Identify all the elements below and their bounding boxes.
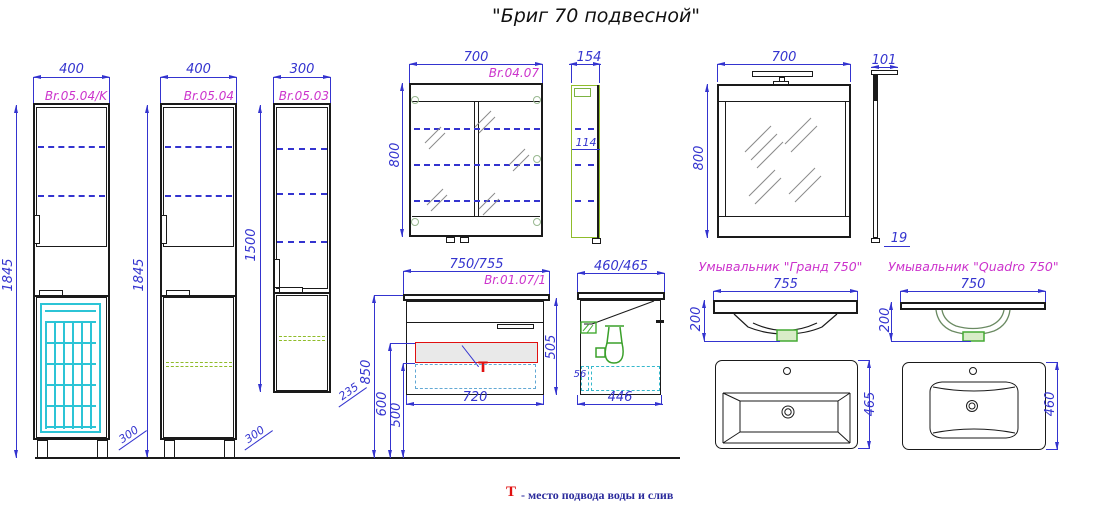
grand-height-dim: 200 — [690, 299, 704, 339]
cab3-door-handle — [274, 259, 280, 288]
mcab-height-dim: 800 — [389, 135, 403, 175]
mirrorside-top-dim: 101 — [864, 53, 904, 68]
mcab-foot-tab — [446, 237, 455, 243]
quadro-height-dim: 200 — [879, 300, 893, 340]
cab2-upper-door — [163, 107, 234, 247]
cab3-lower-handle — [279, 287, 303, 293]
cab1-basket-grid — [45, 321, 96, 429]
cab3-height-dim: 1500 — [245, 225, 259, 265]
vanity-inner-width-dim: 720 — [406, 390, 544, 405]
extension-line — [577, 274, 578, 292]
cab2-shelf-dash — [165, 146, 232, 148]
cab3-shelf-dash — [277, 193, 327, 195]
legend-text: - место подвода воды и слив — [521, 488, 761, 503]
mirrorside-panel-top — [873, 75, 878, 101]
grand-front-slab — [713, 300, 858, 314]
mirror-width-dim: 700 — [717, 50, 851, 65]
cab2-leg-dim: 300 — [237, 420, 273, 451]
vanity-countertop — [403, 294, 550, 301]
vanity-600-dim: 600 — [376, 384, 390, 424]
cab2-width-dim: 400 — [160, 62, 237, 77]
mcab-hinge-circle — [533, 218, 541, 226]
vanity-500-dim: 500 — [390, 395, 404, 435]
cab3-lower-door — [276, 295, 328, 391]
cab2-green-dash — [166, 362, 232, 367]
vanity-drawer-dashed — [415, 364, 536, 389]
extension-line — [704, 341, 780, 342]
cab1-shelf-dash — [38, 195, 105, 197]
cab1-leg — [97, 440, 108, 458]
vanity-width-dim: 750/755 — [403, 257, 550, 272]
extension-line — [374, 295, 403, 296]
mcabside-shelf-dash — [575, 128, 594, 130]
mcab-bottom-line — [412, 216, 540, 217]
extension-line — [390, 343, 415, 344]
legend-t-mark: T — [502, 484, 520, 501]
cab2-height-dim: 1845 — [133, 255, 147, 295]
extension-line — [900, 292, 901, 302]
mirror-inner-line — [725, 102, 726, 216]
vside-56-dim: 56 — [571, 369, 589, 380]
cab1-leg-dim: 300 — [111, 420, 147, 451]
mcabside-shelf-dash — [575, 200, 594, 202]
cab3-article: Br.05.03 — [273, 89, 329, 103]
mirrorside-thickness-line — [884, 246, 910, 247]
cab2-door-handle — [161, 215, 167, 244]
vanity-height-dim: 505 — [545, 327, 559, 367]
quadro-front-slab — [900, 302, 1046, 310]
vside-drawer-dashed — [591, 366, 660, 391]
page-title: "Бриг 70 подвесной" — [476, 5, 716, 27]
mcabside-shelf-dash — [575, 164, 594, 166]
cab2-width-dimline — [160, 77, 237, 78]
extension-line — [571, 65, 572, 83]
extension-line — [664, 274, 665, 292]
quadro-depth-dim: 460 — [1044, 384, 1058, 424]
cab2-shelf-dash — [165, 195, 232, 197]
extension-line — [109, 78, 110, 103]
cab2-height-dimline — [147, 105, 148, 458]
cab3-width-dim: 300 — [273, 62, 331, 77]
cab1-article: Br.05.04/K — [33, 89, 107, 103]
grand-height-dimline — [704, 300, 705, 341]
quadro-title: Умывальник "Quadro 750" — [888, 259, 1056, 274]
grand-width-dim: 755 — [713, 277, 858, 292]
extension-line — [717, 65, 718, 82]
vside-countertop — [577, 292, 665, 300]
quadro-width-dim: 750 — [900, 277, 1046, 292]
quadro-basin-drawing — [902, 362, 1046, 450]
vanity-850-dim: 850 — [360, 352, 374, 392]
grand-front-bowl — [713, 314, 858, 342]
mirror-bottom-line — [719, 216, 849, 217]
cab3-upper-door — [276, 107, 328, 289]
mirror-height-dim: 800 — [693, 138, 707, 178]
mcab-foot-tab — [460, 237, 469, 243]
mcab-article: Br.04.07 — [409, 66, 539, 80]
mcabside-mirror-edge — [597, 85, 599, 238]
mcab-width-dim: 700 — [409, 50, 543, 65]
cab3-width-dimline — [273, 77, 331, 78]
cab2-leg — [164, 440, 175, 458]
cab2-leg — [224, 440, 235, 458]
floor-line — [35, 457, 680, 459]
cab1-upper-door — [36, 107, 107, 247]
cab2-article: Br.05.04 — [160, 89, 234, 103]
cab1-basket-rim — [45, 310, 96, 312]
mcab-hinge-circle — [411, 218, 419, 226]
cab3-shelf-dash — [277, 148, 327, 150]
grand-basin-drawing — [715, 360, 858, 449]
cab3-shelf-dash — [277, 241, 327, 243]
mirrorside-foot — [871, 238, 880, 243]
vanity-article: Br.01.07/1 — [403, 273, 546, 287]
cab3-height-dimline — [260, 105, 261, 392]
vanity-drawer-line — [406, 322, 544, 323]
grand-depth-dim: 465 — [864, 384, 878, 424]
cab3-green-dash — [279, 336, 325, 341]
extension-line — [891, 341, 971, 342]
cab1-shelf-dash — [38, 146, 105, 148]
grand-title: Умывальник "Гранд 750" — [698, 259, 863, 274]
cab1-leg — [37, 440, 48, 458]
mirrorside-thickness-dim: 19 — [886, 231, 912, 246]
extension-line — [236, 78, 237, 103]
vanity-handle-slot — [497, 324, 534, 329]
mcabside-depth-dim: 154 — [567, 50, 611, 65]
cab1-lower-handle — [39, 290, 63, 296]
drawing-canvas: "Бриг 70 подвесной" 400 Br.05.04/K 1845 … — [0, 0, 1095, 517]
extension-line — [599, 65, 600, 83]
cab1-door-handle — [34, 215, 40, 244]
cab1-height-dim: 1845 — [2, 255, 16, 295]
mirror-top-line — [719, 101, 849, 102]
cab1-height-dimline — [16, 105, 17, 458]
extension-line — [549, 272, 550, 294]
mirror-height-dimline — [707, 84, 708, 238]
cab2-lower-handle — [166, 290, 190, 296]
mcabside-inner-dim: 114 — [572, 136, 600, 150]
cab2-lower-door — [163, 297, 234, 438]
vside-bottom-dim: 446 — [577, 390, 663, 405]
extension-line — [1045, 292, 1046, 302]
extension-line — [330, 78, 331, 103]
mcabside-body — [571, 85, 600, 238]
cab1-width-dimline — [33, 77, 110, 78]
mcabside-foot-tab — [592, 238, 601, 244]
vanity-850-dimline — [374, 295, 375, 458]
cab1-width-dim: 400 — [33, 62, 110, 77]
mcab-mirror-hatch — [413, 93, 541, 215]
mirror-glass-hatch — [727, 108, 843, 213]
mcabside-lamp-box — [574, 88, 591, 97]
mirror-inner-line — [845, 102, 846, 216]
vside-depth-dim: 460/465 — [577, 259, 665, 274]
quadro-front-bowl — [900, 310, 1046, 342]
extension-line — [542, 65, 543, 83]
extension-line — [850, 65, 851, 82]
